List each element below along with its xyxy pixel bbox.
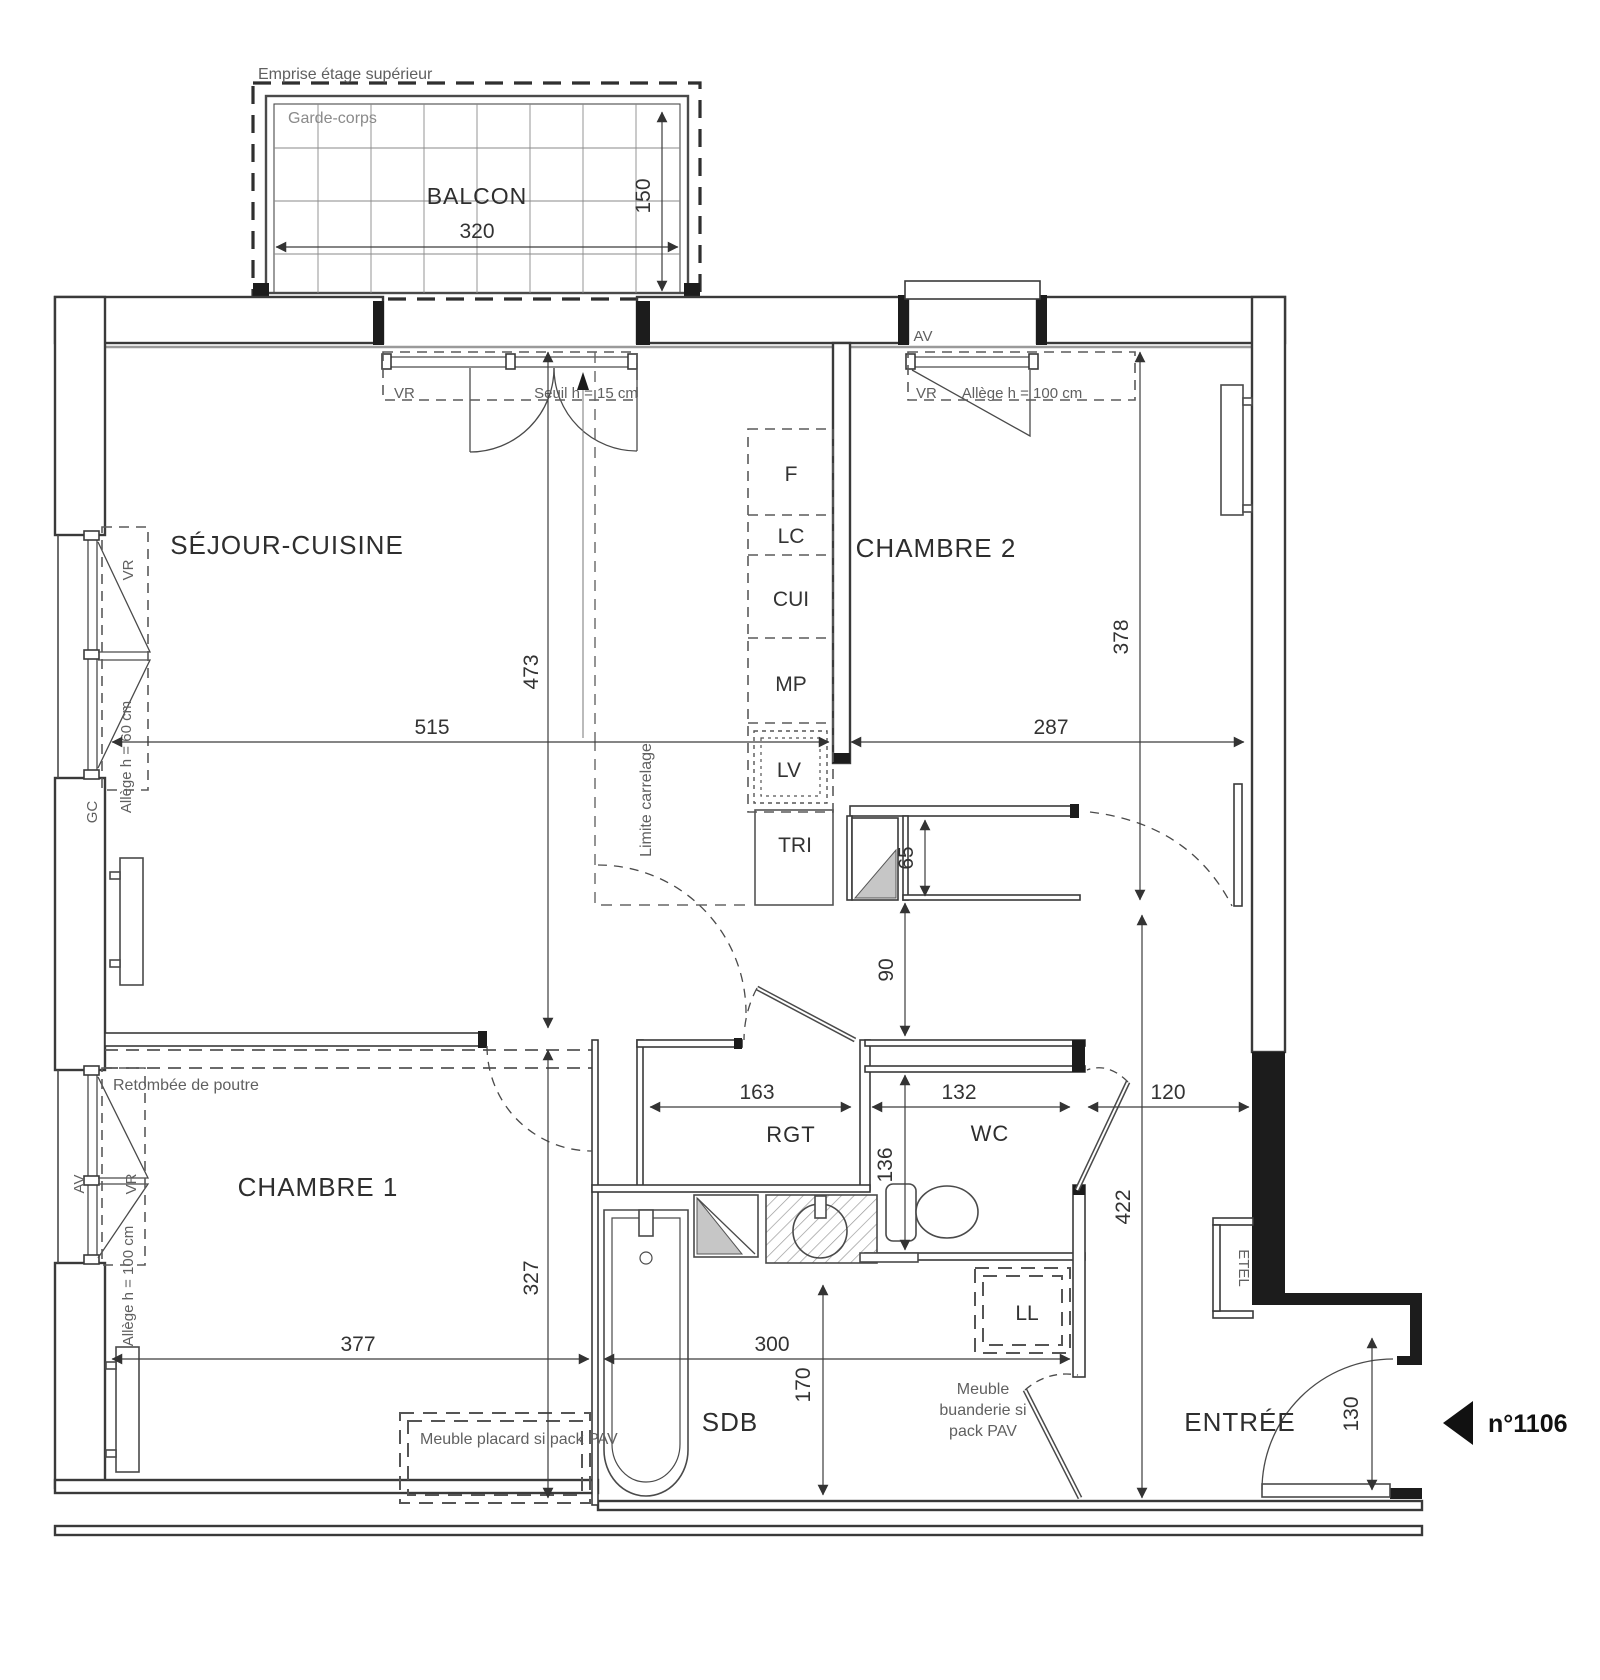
duct-cabinet — [852, 818, 898, 900]
wall-niche-cap — [1070, 804, 1079, 818]
dim-entry-door: 130 — [1340, 1396, 1363, 1431]
wall-wc-band-1 — [865, 1040, 1085, 1046]
vr-label-balcony: VR — [394, 385, 415, 402]
wall-rgt-wc — [860, 1040, 870, 1190]
entry-door-jamb-top — [1397, 1356, 1422, 1365]
kitchen-label-cui: CUI — [773, 588, 809, 611]
bathtub — [604, 1210, 688, 1496]
kitchen-label-mp: MP — [775, 673, 807, 696]
wall-bottom-outer — [55, 1526, 1422, 1535]
upper-floor-label: Emprise étage supérieur — [258, 66, 433, 83]
room-label-sejour: SÉJOUR-CUISINE — [170, 530, 404, 560]
room-label-balcon: BALCON — [427, 183, 528, 209]
tile-limit-label: Limite carrelage — [638, 743, 655, 857]
meuble-placard-label: Meuble placard si pack PAV — [420, 1431, 618, 1448]
wall-wc-band-cap — [1072, 1040, 1085, 1072]
wall-entry-top — [1278, 1293, 1422, 1305]
jamb-ch2-left — [898, 295, 909, 345]
dim-sdb-width: 300 — [754, 1333, 789, 1356]
vr-label-ch1: VR — [123, 1173, 140, 1194]
dim-rgt-width: 163 — [739, 1081, 774, 1104]
gc-label: GC — [84, 801, 101, 824]
dim-sdb-depth: 170 — [792, 1367, 815, 1402]
dim-ch2-width: 287 — [1033, 716, 1068, 739]
wall-entry-right — [1410, 1305, 1422, 1358]
wall-wc-band-2 — [865, 1066, 1085, 1072]
allege60-label: Allège h = 60 cm — [118, 701, 135, 813]
jamb-ch2-right — [1036, 295, 1047, 345]
room-label-sdb: SDB — [702, 1407, 758, 1437]
floor-plan-page: Emprise étage supérieur Garde-corps BALC… — [0, 0, 1600, 1680]
dim-sejour-width: 515 — [414, 716, 449, 739]
kitchen-label-lv: LV — [777, 759, 801, 782]
wall-ch2-niche — [850, 806, 1078, 816]
beam-label: Retombée de poutre — [113, 1077, 259, 1094]
dim-ch2-depth: 378 — [1110, 619, 1133, 654]
dim-ch1-depth: 327 — [520, 1260, 543, 1295]
vr-label-ch2: VR — [916, 385, 937, 402]
dim-sejour-depth: 473 — [520, 654, 543, 689]
wall-sdb-right — [1073, 1185, 1085, 1377]
wall-bottom-sdb — [598, 1501, 1422, 1510]
dim-placard-ch2: 65 — [895, 846, 918, 869]
wall-rgt-top — [637, 1040, 742, 1047]
wall-chambre1-top — [105, 1033, 483, 1046]
av-label-ch1: AV — [71, 1175, 88, 1194]
wall-niche-bottom — [903, 895, 1080, 900]
etel-label: ETEL — [1235, 1249, 1252, 1287]
balcony: Emprise étage supérieur Garde-corps BALC… — [253, 66, 700, 300]
room-label-rgt: RGT — [766, 1122, 815, 1147]
allege100-label-ch1: Allège h = 100 cm — [120, 1226, 137, 1347]
dim-balcon-width: 320 — [459, 220, 494, 243]
etel-top — [1213, 1218, 1253, 1225]
room-label-wc: WC — [971, 1121, 1010, 1146]
wall-rgt-sdb — [592, 1185, 870, 1192]
toilet-bowl-icon — [916, 1186, 978, 1238]
wall-chambre1-cap — [478, 1031, 487, 1048]
meuble-buanderie-l2: buanderie si — [939, 1402, 1026, 1419]
dim-degagement-width: 120 — [1150, 1081, 1185, 1104]
jamb-balcony-left — [373, 301, 384, 345]
wall-kitchen-cap — [833, 753, 850, 763]
dim-ch1-width: 377 — [340, 1333, 375, 1356]
dim-wc-depth: 136 — [874, 1147, 897, 1182]
wall-top-b — [637, 297, 908, 343]
dim-wc-width: 132 — [941, 1081, 976, 1104]
ll-label: LL — [1015, 1302, 1038, 1325]
entry-door-jamb-bottom — [1390, 1488, 1422, 1499]
wall-right-bearing — [1252, 1052, 1285, 1305]
wall-rgt-left — [637, 1040, 643, 1190]
room-label-chambre1: CHAMBRE 1 — [238, 1172, 399, 1202]
wall-kitchen-ch2 — [833, 343, 850, 763]
wall-left-c — [55, 1263, 105, 1488]
floor-plan: Emprise étage supérieur Garde-corps BALC… — [0, 0, 1600, 1680]
vanity-unit — [694, 1195, 758, 1257]
kitchen-label-lc: LC — [778, 525, 805, 548]
av-label-top: AV — [914, 328, 933, 345]
etel-bottom — [1213, 1311, 1253, 1318]
kitchen-label-f: F — [785, 463, 798, 486]
unit-number: n°1106 — [1488, 1410, 1568, 1438]
guardrail-label: Garde-corps — [288, 110, 377, 127]
dim-degagement-ch2: 90 — [875, 958, 898, 981]
dim-balcon-depth: 150 — [632, 178, 655, 213]
toilet-base — [860, 1253, 918, 1262]
wall-top-c — [1037, 297, 1285, 343]
jamb-balcony-right — [636, 301, 650, 345]
vr-label-sejour: VR — [120, 559, 137, 580]
kitchen-label-tri: TRI — [778, 834, 812, 857]
bathtub-tap-icon — [639, 1210, 653, 1236]
basin-tap-icon — [815, 1196, 826, 1218]
wall-bottom-chambre1 — [55, 1480, 598, 1493]
wall-right — [1252, 297, 1285, 1052]
wall-left-a — [55, 297, 105, 535]
dim-entree-depth: 422 — [1112, 1189, 1135, 1224]
meuble-buanderie-l1: Meuble — [957, 1381, 1010, 1398]
wall-rgt-cap — [734, 1038, 742, 1049]
meuble-buanderie-l3: pack PAV — [949, 1423, 1017, 1440]
etel-side — [1213, 1225, 1220, 1311]
allege100-label-top: Allège h = 100 cm — [962, 385, 1083, 402]
room-label-entree: ENTRÉE — [1184, 1407, 1295, 1437]
room-label-chambre2: CHAMBRE 2 — [856, 533, 1017, 563]
